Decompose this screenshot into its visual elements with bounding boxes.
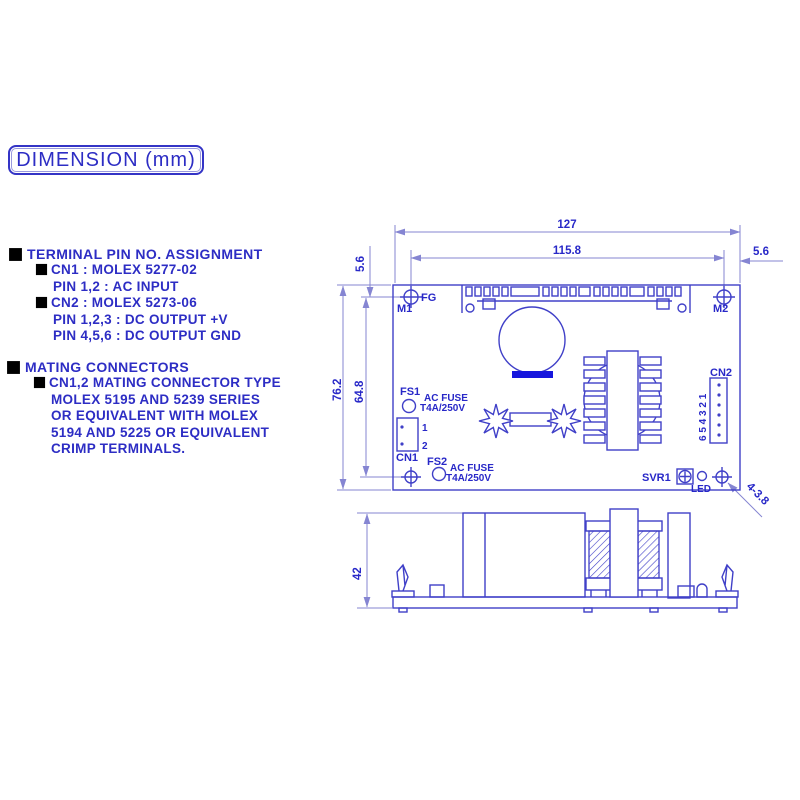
label-fs1: FS1: [400, 386, 420, 398]
dim-hole-span-width: 115.8: [553, 245, 582, 257]
pcb-dimension-drawing: 127 115.8 5.6 5.6 76.2 64.8 4-3.8: [0, 0, 800, 800]
fuse-fs2: [433, 468, 446, 481]
heatsink-strip: [462, 285, 690, 313]
cn1-connector: [397, 418, 418, 451]
label-cn1: CN1: [396, 452, 418, 464]
label-svr1: SVR1: [642, 472, 671, 484]
dim-total-width: 127: [557, 219, 576, 231]
label-m1: M1: [397, 303, 412, 315]
label-cn2-pin-numbers: 6 5 4 3 2 1: [698, 393, 709, 441]
dim-edge-offset-right: 5.6: [753, 246, 769, 258]
label-m2: M2: [713, 303, 728, 315]
dimension-drawing-page: { "title": "DIMENSION (mm)", "notes": { …: [0, 0, 800, 800]
dim-hole-span-height: 64.8: [354, 380, 366, 403]
component-right-side: [668, 513, 690, 598]
label-cn1-pin2: 2: [422, 441, 428, 452]
small-component-left: [430, 585, 444, 597]
svr1-trimpot: [677, 469, 693, 484]
mounting-hole-bottom-left: [401, 467, 421, 487]
spring-clip-right: [716, 565, 738, 597]
board-side-view: [357, 509, 738, 612]
label-fg: FG: [421, 292, 436, 304]
capacitor-top-view: [499, 307, 565, 378]
capacitor-side: [697, 584, 707, 597]
label-fuse2-line2: T4A/250V: [446, 473, 491, 484]
label-cn1-pin1: 1: [422, 423, 428, 434]
jagged-heatsink: [479, 404, 581, 438]
cn2-connector: [710, 378, 727, 443]
dim-mounting-hole-note: 4-3.8: [744, 481, 771, 508]
dim-edge-offset-left: 5.6: [355, 256, 367, 272]
label-cn2: CN2: [710, 367, 732, 379]
label-fuse1-line2: T4A/250V: [420, 403, 465, 414]
transformer-side-view: [586, 509, 662, 597]
small-component-right: [678, 586, 694, 597]
led-indicator: [698, 472, 707, 481]
label-led: LED: [691, 484, 711, 495]
large-component-side: [463, 513, 585, 597]
transformer-top-view: [584, 351, 661, 450]
dim-side-height: 42: [352, 567, 364, 580]
spring-clip-left: [392, 565, 414, 597]
label-fs2: FS2: [427, 456, 447, 468]
fuse-fs1: [403, 400, 416, 413]
dim-total-height: 76.2: [332, 379, 344, 401]
